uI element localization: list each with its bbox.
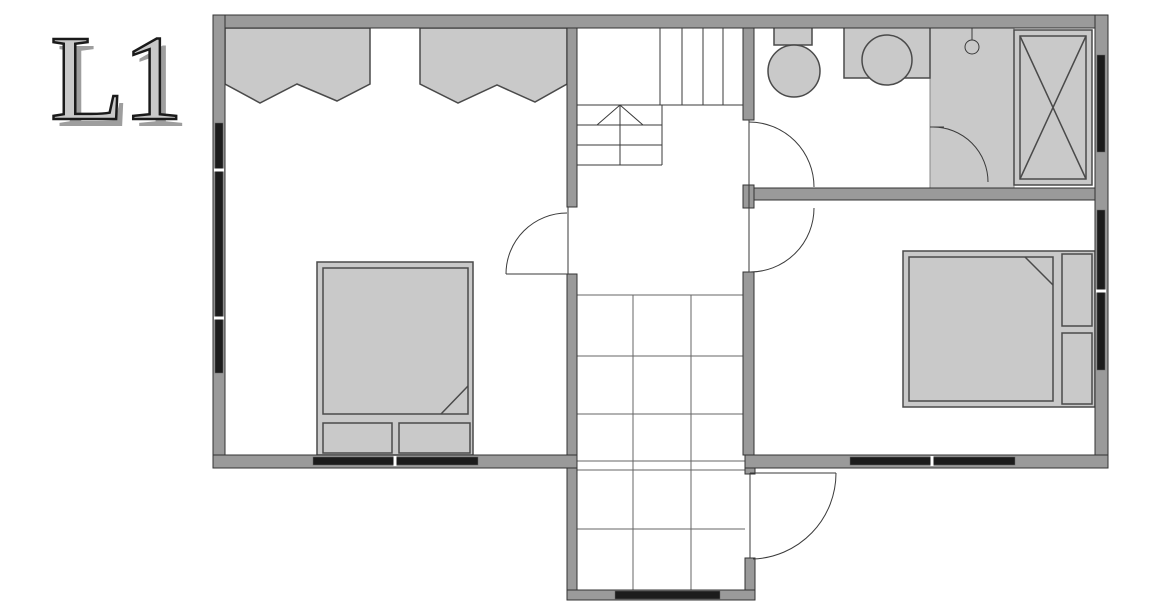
window-band: [215, 123, 223, 373]
double-bed-left: [317, 262, 473, 455]
basin: [862, 35, 912, 85]
wall-stairwell-left-upper: [567, 28, 577, 207]
tall-cabinet-x: [1014, 30, 1092, 185]
door-right-bedroom: [749, 208, 814, 272]
hanging-wardrobe-middle: [420, 28, 567, 103]
door-swing-arc: [753, 473, 836, 559]
bed-pillow: [1062, 254, 1092, 326]
wall-stairwell-left-lower: [567, 274, 577, 455]
window-bottom-left-bedroom: [313, 456, 478, 466]
window-band: [615, 591, 720, 599]
toilet: [768, 26, 820, 97]
bed-pillow: [1062, 333, 1092, 404]
shower-area: [930, 28, 1014, 188]
shower-floor: [930, 28, 1014, 188]
window-band: [1097, 55, 1105, 152]
tile-grid-lines: [577, 295, 745, 590]
wardrobe-shape: [225, 28, 370, 103]
window-left-wall: [214, 123, 224, 373]
toilet-bowl: [768, 45, 820, 97]
wall-stairwell-right-upper: [743, 28, 754, 120]
bed-mattress: [909, 257, 1053, 401]
hanging-wardrobe-left: [225, 28, 370, 103]
staircase-up: [577, 28, 743, 165]
window-right-bathroom: [1097, 55, 1105, 152]
toilet-tank: [774, 26, 812, 45]
floor-plan: [0, 0, 1170, 616]
floorplan-page: L1: [0, 0, 1170, 616]
wall-bathroom-bedroom-divider: [754, 188, 1095, 200]
window-right-bedroom: [1096, 210, 1106, 370]
stair-winder-steps: [577, 105, 662, 165]
bed-pillow: [323, 423, 392, 453]
washbasin-counter: [844, 26, 930, 85]
door-entry: [750, 473, 836, 559]
wall-exterior-top: [213, 15, 1108, 28]
double-bed-right: [903, 251, 1095, 407]
bed-mattress: [323, 268, 468, 414]
door-swing-arc: [749, 208, 814, 272]
threshold-lines: [577, 461, 745, 470]
door-swing-arc: [506, 213, 567, 274]
wall-stairwell-right-lower: [743, 272, 754, 455]
stair-treads: [660, 28, 723, 105]
door-left-bedroom: [506, 207, 568, 274]
wardrobe-shape: [420, 28, 567, 103]
window-bottom-right-bedroom: [850, 456, 1015, 466]
tiled-entry-floor: [577, 295, 745, 590]
wall-vestibule-left: [567, 468, 577, 600]
door-swing-arc: [749, 122, 814, 187]
bed-pillow: [399, 423, 470, 453]
window-vestibule: [615, 591, 720, 599]
